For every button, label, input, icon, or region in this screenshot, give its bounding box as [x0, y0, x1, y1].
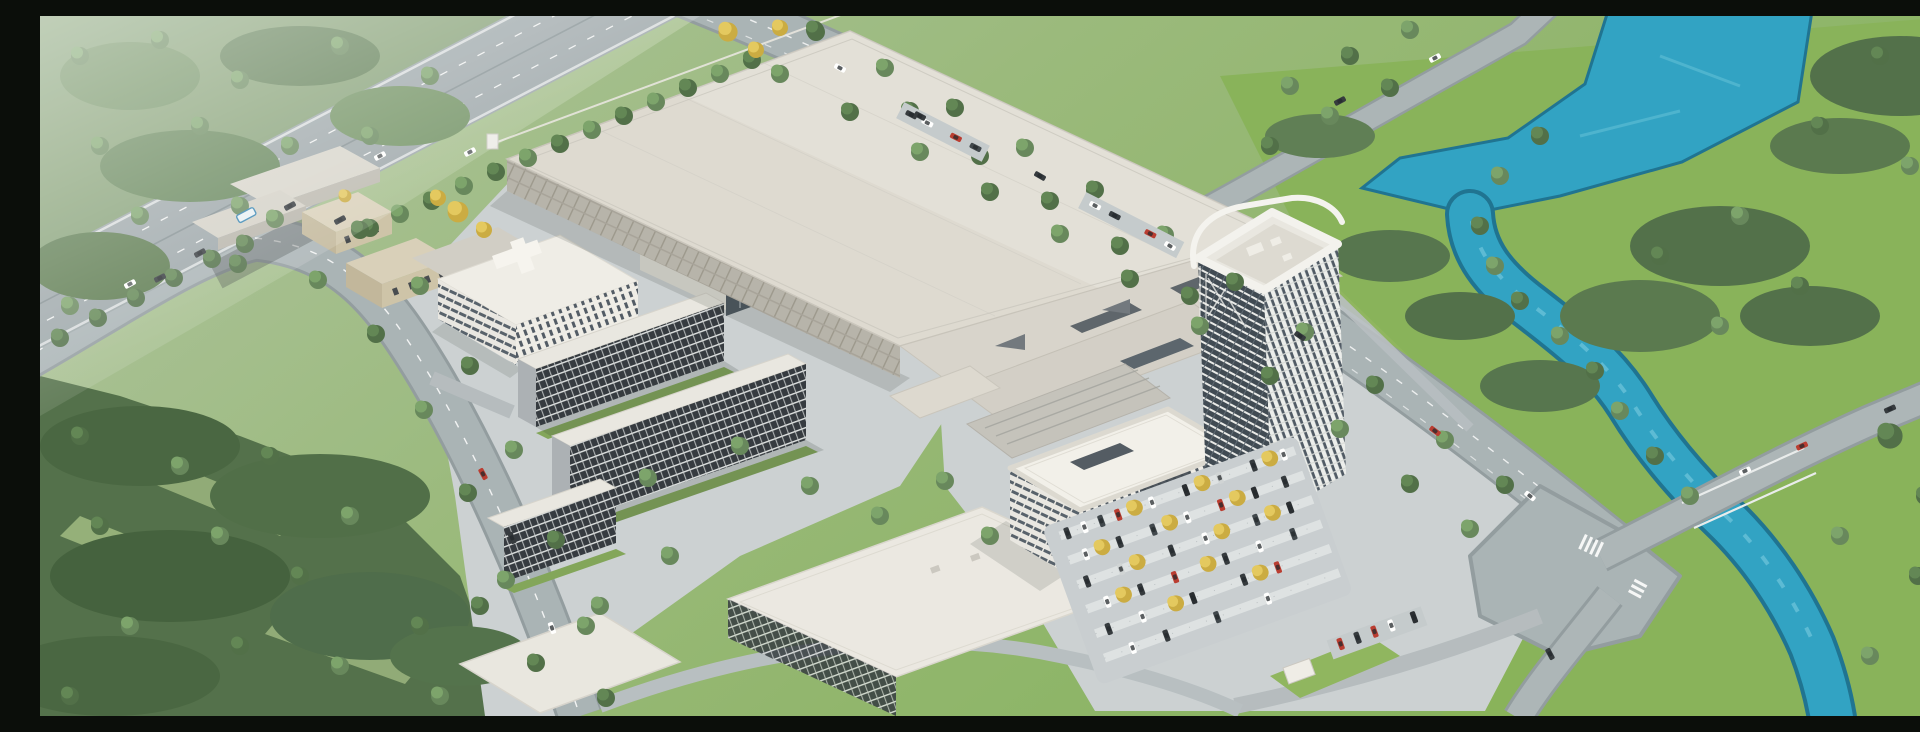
aerial-campus-rendering: Daytime aerial rendering of a large indu… [40, 16, 1920, 716]
scene-canvas: Daytime aerial rendering of a large indu… [40, 16, 1920, 716]
atmosphere-tint [40, 16, 1920, 716]
